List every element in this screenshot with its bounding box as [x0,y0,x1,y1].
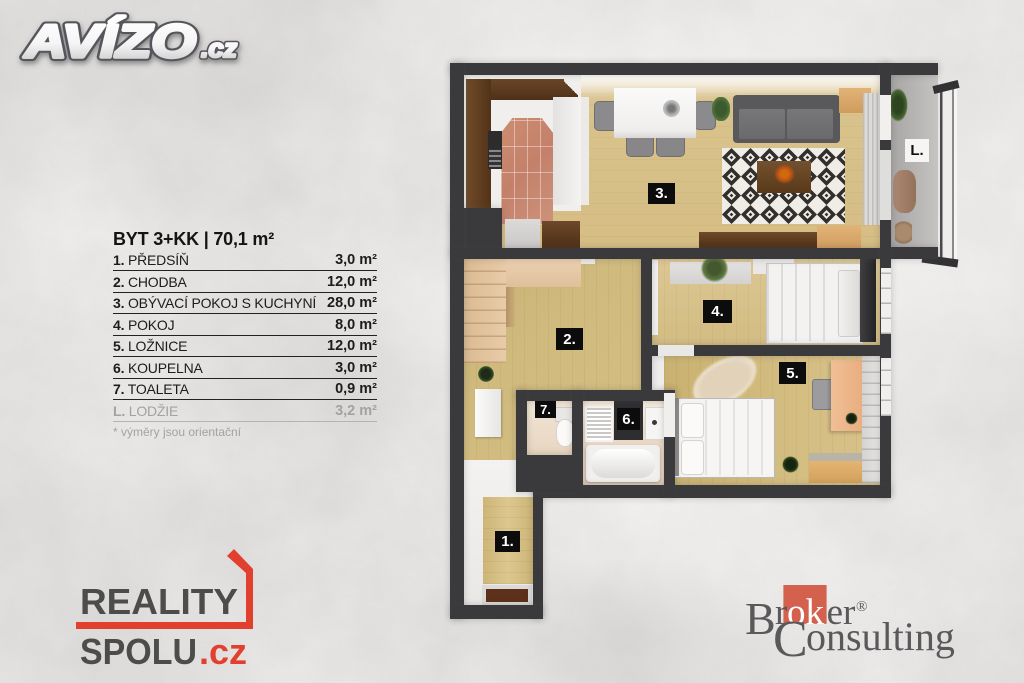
svg-text:AVÍZO: AVÍZO [24,15,197,67]
svg-text:.cz: .cz [199,631,247,672]
svg-text:REALITY: REALITY [80,581,238,622]
svg-text:®: ® [856,599,867,615]
svg-text:B: B [745,593,776,644]
svg-text:C: C [773,611,808,668]
svg-text:onsulting: onsulting [806,614,955,659]
svg-text:SPOLU: SPOLU [80,631,197,672]
svg-text:.cz: .cz [201,33,237,63]
